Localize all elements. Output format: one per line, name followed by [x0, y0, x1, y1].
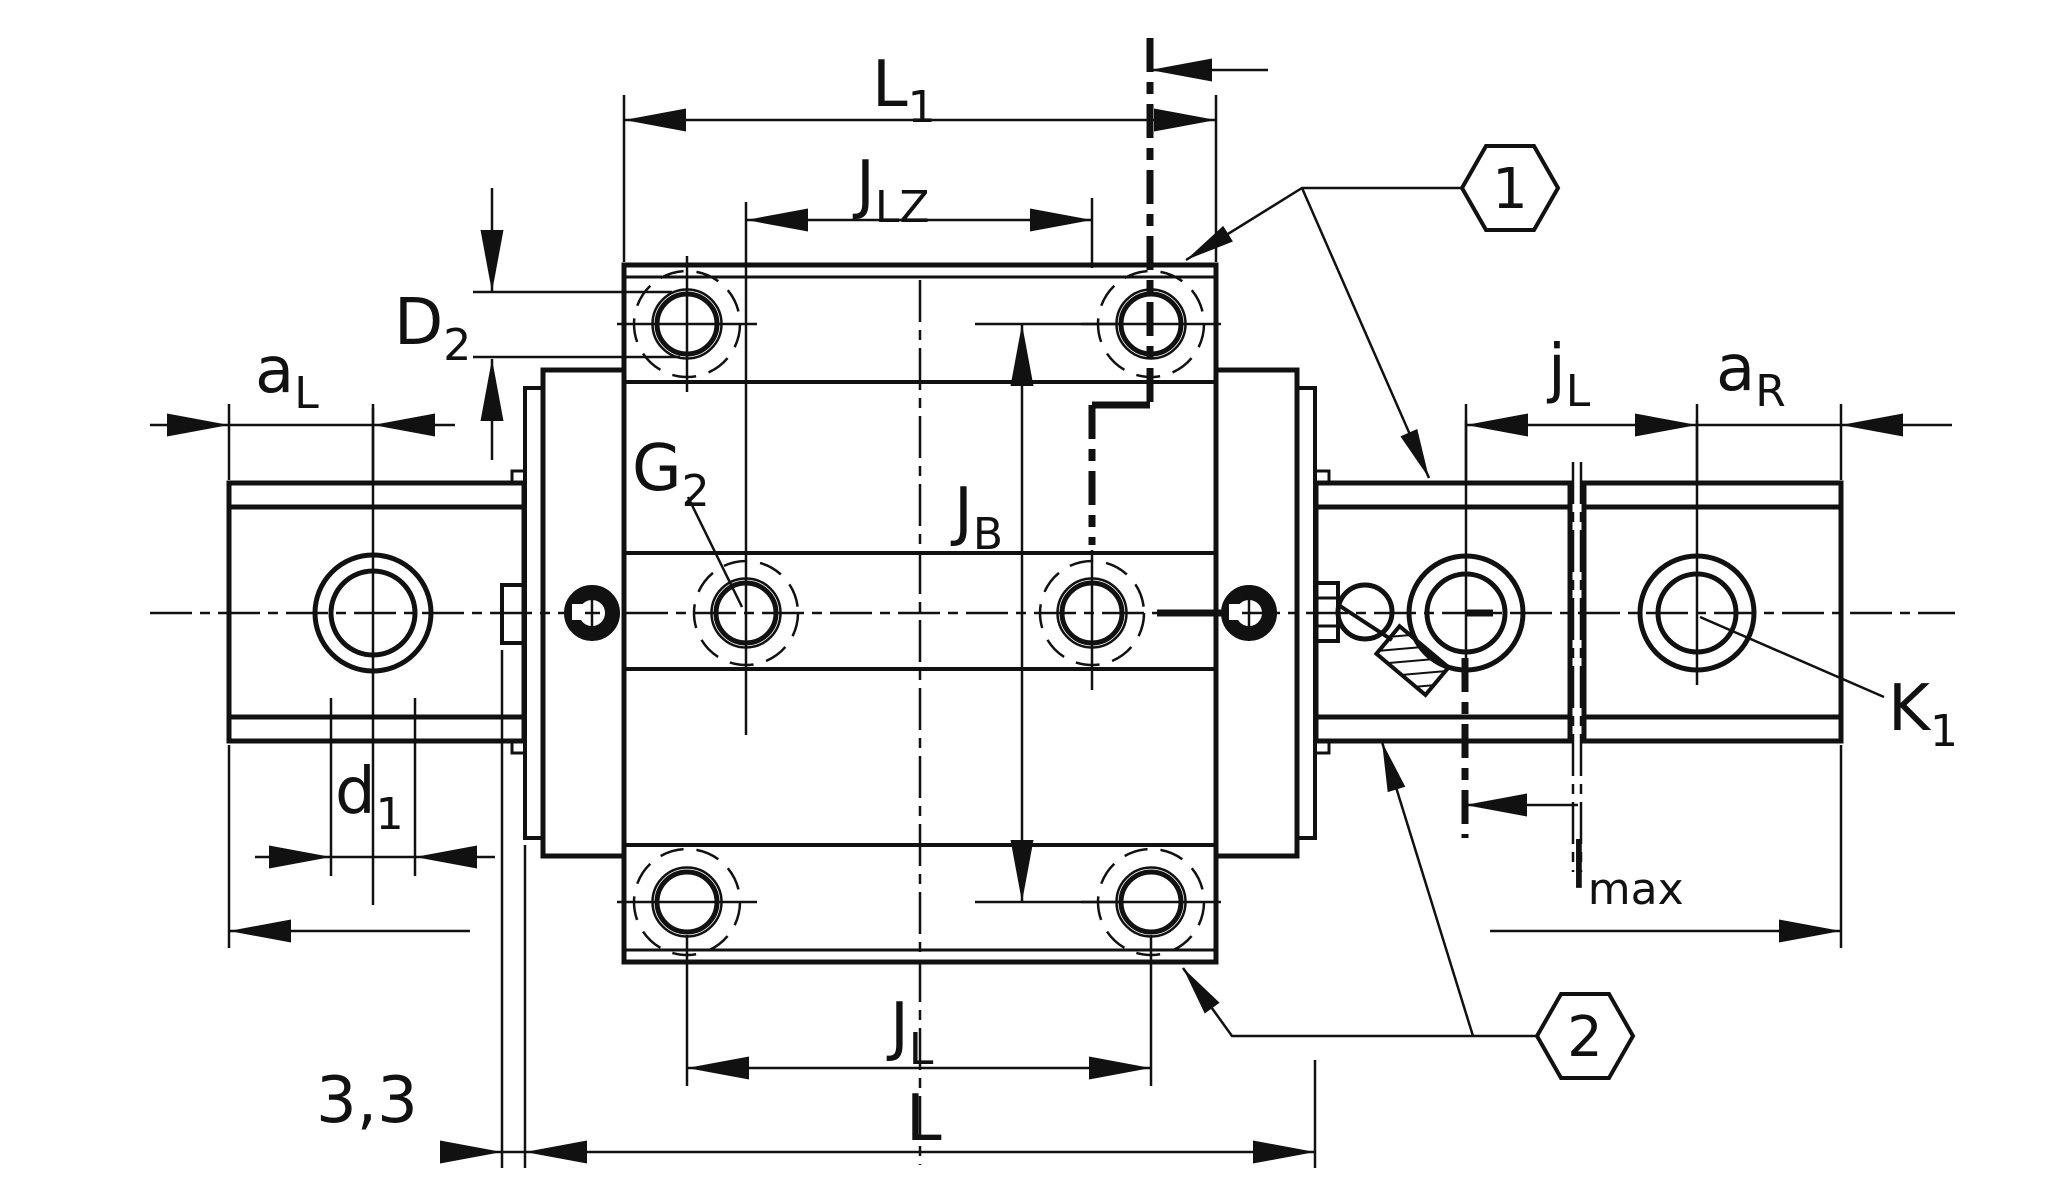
center-hole-left: [694, 202, 798, 735]
technical-drawing-page: 1 2 L1 JLZ D2 aL G2 JB jL aR K1 d1 lmax …: [0, 0, 2070, 1200]
label-G2: G2: [632, 432, 710, 517]
label-L1: L1: [872, 48, 936, 133]
ref-marker-right-arrow: [1465, 794, 1527, 817]
dim-jL-aR: [1466, 404, 1952, 480]
centerlines: [150, 280, 1955, 1165]
callout-2-leader: [1183, 968, 1537, 1036]
label-aL: aL: [255, 334, 319, 419]
label-lmax: lmax: [1570, 830, 1684, 915]
callout-1-leader: [1186, 188, 1462, 260]
label-D2: D2: [394, 286, 471, 371]
ref-marker-top-arrow: [1150, 59, 1212, 82]
dimension-label-texts: L1 JLZ D2 aL G2 JB jL aR K1 d1 lmax JL L…: [255, 48, 1958, 1156]
right-rail: [1316, 420, 1841, 741]
label-K1: K1: [1888, 672, 1958, 757]
label-JL: JL: [886, 990, 934, 1075]
center-hole-right: [1040, 198, 1144, 690]
callout-2-number: 2: [1567, 1005, 1603, 1070]
label-L: L: [906, 1082, 942, 1156]
callout-2: 2: [1176, 739, 1633, 1078]
callout-1-number: 1: [1492, 157, 1528, 222]
label-d1: d1: [335, 755, 404, 840]
label-aR: aR: [1716, 332, 1786, 417]
label-gap-3-3: 3,3: [316, 1064, 418, 1138]
dimensions: [150, 95, 1952, 1168]
guideway-carriage-drawing: 1 2 L1 JLZ D2 aL G2 JB jL aR K1 d1 lmax …: [0, 0, 2070, 1200]
label-JLZ: JLZ: [852, 148, 930, 233]
label-JB: JB: [950, 475, 1003, 560]
label-jL: jL: [1546, 332, 1591, 417]
left-lube-ring-notch: [572, 604, 585, 620]
right-lube-ring-notch: [1229, 604, 1242, 620]
K1-leader-line: [1700, 617, 1884, 697]
